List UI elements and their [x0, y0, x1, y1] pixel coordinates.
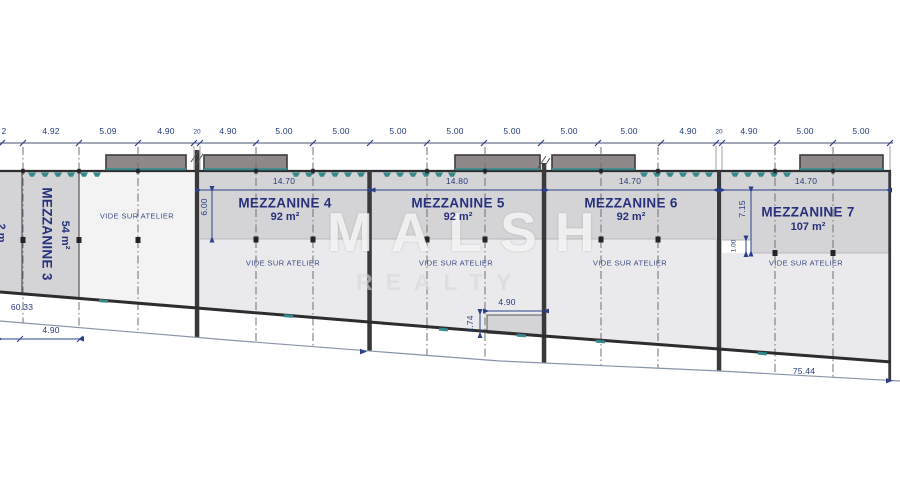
top-dim-label: 5.00	[796, 126, 813, 136]
vide-sur-atelier-7: VIDE SUR ATELIER	[769, 259, 843, 268]
total-right-dim: 75.44	[793, 366, 815, 376]
total-left-dim: 60.33	[11, 302, 33, 312]
left-bay-dim: 4.90	[42, 325, 59, 335]
mezzanine-5-label: MEZZANINE 5	[411, 196, 504, 211]
top-dim-label: 20	[193, 129, 200, 136]
top-dim-label: 5.00	[446, 126, 463, 136]
stair-box-width-dim: 4.90	[498, 297, 515, 307]
top-dim-label: 4.90	[740, 126, 757, 136]
edge-fragment-label: 2 m	[0, 224, 7, 243]
mezzanine-7-depth: 7.15	[737, 200, 747, 217]
top-dim-label: 5.00	[852, 126, 869, 136]
top-dim-label: 5.00	[503, 126, 520, 136]
mezzanine-4-label: MEZZANINE 4	[238, 196, 331, 211]
top-dim-label: 4.90	[157, 126, 174, 136]
top-dim-label: 4.92	[42, 126, 59, 136]
top-dim-label: 4.90	[219, 126, 236, 136]
mezzanine-5-width: 14.80	[446, 176, 468, 186]
top-dim-label: 5.00	[560, 126, 577, 136]
vide-sur-atelier-6: VIDE SUR ATELIER	[593, 259, 667, 268]
mezzanine-5-area: 92 m²	[444, 211, 473, 223]
mezzanine-6-area: 92 m²	[617, 211, 646, 223]
mezzanine-4-area: 92 m²	[271, 211, 300, 223]
mezzanine-4-width: 14.70	[273, 176, 295, 186]
watermark-line2: REALTY	[356, 269, 524, 296]
mezzanine-4-depth: 6.00	[199, 198, 209, 215]
stair-box-height-dim: 1.74	[465, 315, 475, 332]
mezzanine-6-label: MEZZANINE 6	[584, 196, 677, 211]
vide-sur-atelier-4: VIDE SUR ATELIER	[246, 259, 320, 268]
mezzanine-7-step: 1.00	[731, 240, 738, 253]
top-dim-label: 5.09	[99, 126, 116, 136]
top-dim-label: 5.00	[620, 126, 637, 136]
mezzanine-3-label: MEZZANINE 3	[40, 187, 55, 280]
top-dim-label: 5.00	[332, 126, 349, 136]
top-dim-label: 20	[715, 129, 722, 136]
bottom-left-dim-line	[2, 336, 83, 342]
floor-plan-canvas: MALSH REALTY 2 4.92 5.09 4.90 20 4.90 5.…	[0, 0, 900, 500]
mezzanine-7-label: MEZZANINE 7	[761, 205, 854, 220]
mezzanine-7-area: 107 m²	[791, 221, 826, 233]
top-dim-label: 4.90	[679, 126, 696, 136]
top-dim-label: 2	[2, 126, 7, 136]
vide-sur-atelier-left: VIDE SUR ATELIER	[100, 212, 174, 221]
top-dim-label: 5.00	[275, 126, 292, 136]
vide-sur-atelier-5: VIDE SUR ATELIER	[419, 259, 493, 268]
top-dim-label: 5.00	[389, 126, 406, 136]
mezzanine-3-area: 54 m²	[59, 221, 71, 250]
mezzanine-7-width: 14.70	[795, 176, 817, 186]
mezzanine-6-width: 14.70	[619, 176, 641, 186]
